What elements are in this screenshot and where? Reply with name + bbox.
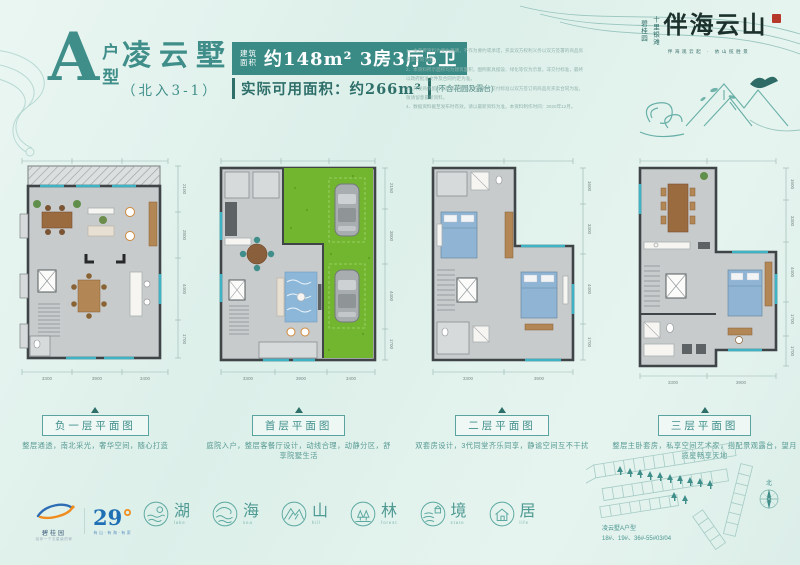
poster-canvas: A 户 型 凌云墅 （北入3-1） 建筑 面积 约148m² 3房3厅5卫 实际… (0, 0, 800, 565)
dim-label: 4400 (389, 291, 394, 302)
caption-pointer-icon (701, 407, 709, 413)
feature-en: hill (312, 520, 328, 525)
dim-label: 3300 (668, 380, 679, 385)
feature-lake: 湖lake (142, 500, 190, 528)
dim-label: 3400 (346, 376, 357, 381)
feature-en: lake (174, 520, 190, 525)
disclaimer-line: 4、数据资料截至发布时有效，请以最新资料为准，本资料制作时间：2020年12月。 (406, 102, 584, 111)
unit-type-letter: A (48, 26, 99, 89)
dim-label: 3900 (736, 380, 747, 385)
compass: 北 (756, 478, 782, 517)
unit-type-block: A 户 型 (48, 26, 120, 89)
feature-en: forest (381, 520, 397, 525)
dim-label: 1700 (389, 339, 394, 350)
temperature-mark: 29° (93, 507, 133, 528)
car-icon (335, 184, 359, 236)
sea-icon (211, 500, 239, 528)
feature-hill: 山hill (280, 500, 328, 528)
lake-icon (142, 500, 170, 528)
feature-en: life (520, 520, 536, 525)
feature-sea: 海sea (211, 500, 259, 528)
caption-pointer-icon (498, 407, 506, 413)
dim-label: 1600 (587, 181, 592, 192)
divider (84, 508, 85, 534)
wave-curl-icon (640, 103, 684, 137)
feature-char: 湖 (174, 503, 190, 519)
dim-label: 3300 (243, 376, 254, 381)
feature-life: 居life (488, 500, 536, 528)
feature-char: 境 (451, 503, 467, 519)
dim-label: 2800 (182, 230, 187, 241)
dim-label: 4400 (182, 284, 187, 295)
dim-label: 3900 (296, 376, 307, 381)
compass-north-label: 北 (766, 479, 772, 487)
villa-name: 凌云墅 (122, 32, 233, 74)
bed (521, 272, 557, 318)
floorplan-ground-drawing: 3300 3900 3400 2150 3800 4400 1700 (203, 154, 395, 400)
dim-label: 3900 (534, 376, 545, 381)
sitemap-block: 凌云墅A户型 18#、19#、36#-55#03/04 (586, 430, 771, 555)
floorplan-ground: 3300 3900 3400 2150 3800 4400 1700 首层平面图… (203, 154, 395, 461)
floorplan-second: 3300 3900 1600 3300 4400 1700 二层平面图 双套房设… (407, 154, 598, 461)
bed (441, 212, 477, 258)
sitemap-drawing: 凌云墅A户型 18#、19#、36#-55#03/04 (586, 430, 771, 550)
plan-caption: 二层平面图 (455, 415, 549, 436)
plan-description: 整层通透，南北采光，奢华空间，随心打造 (0, 441, 191, 451)
dim-label: 1700 (790, 346, 795, 357)
disclaimer-block: 1、本宣传资料为要约邀请，不作为要约或承诺，买卖双方权利义务以双方签署的商品房买… (406, 46, 584, 112)
caption-pointer-icon (91, 407, 99, 413)
dim-label: 4400 (587, 284, 592, 295)
plan-description: 双套房设计，3代同堂齐乐同享，静谧空间互不干扰 (407, 441, 598, 451)
unit-type-char-top: 户 (102, 38, 120, 63)
leaves-icon (700, 87, 736, 102)
dim-label: 2100 (182, 184, 187, 195)
floorplan-basement: 3300 3900 3400 2100 2800 4400 1700 负一层平面… (0, 154, 191, 461)
dim-label: 3900 (92, 376, 103, 381)
floorplan-second-drawing: 3300 3900 1600 3300 4400 1700 (409, 154, 595, 400)
compass-icon: 北 (756, 478, 782, 512)
life-icon (488, 500, 516, 528)
plan-caption: 负一层平面图 (42, 415, 149, 436)
car-icon (335, 270, 359, 322)
brand-logo-text: 伴海云山 (664, 12, 768, 38)
brand-vertical-2: 碧桂园 (638, 16, 648, 46)
floorplan-third: 3300 3900 1600 3300 4400 1700 1700 三层平面图… (609, 154, 800, 461)
forest-icon (349, 500, 377, 528)
unit-location-markers (617, 466, 713, 504)
dim-label: 3300 (463, 376, 474, 381)
feature-icons-row: 湖lake 海sea 山hill 林forest (142, 500, 536, 528)
brand-tagline: 伴海观云起 · 依山揽胜景 (634, 49, 784, 55)
dim-label: 3300 (587, 224, 592, 235)
dim-label: 1700 (587, 337, 592, 348)
dim-label: 1700 (182, 334, 187, 345)
feature-en: sea (243, 520, 259, 525)
dim-label: 1600 (790, 179, 795, 190)
plan-caption: 首层平面图 (252, 415, 346, 436)
mountains-icon (686, 84, 788, 126)
feature-char: 山 (312, 503, 328, 519)
country-garden-logo-icon (32, 500, 76, 522)
disclaimer-line: 2、本资料所示面积均为建筑面积，图例家具摆设、绿化等仅为示意，非交付标准，最终以… (406, 65, 584, 84)
feature-char: 海 (243, 503, 259, 519)
dim-label: 4400 (790, 267, 795, 278)
feature-forest: 林forest (349, 500, 397, 528)
dim-label: 1700 (790, 314, 795, 325)
entrance-label: （北入3-1） (122, 79, 233, 99)
feature-en: state (451, 520, 467, 525)
unit-type-char-bottom: 型 (102, 63, 120, 88)
sitemap-units: 18#、19#、36#-55#03/04 (602, 536, 672, 542)
hill-icon (280, 500, 308, 528)
dim-label: 3400 (140, 376, 151, 381)
developer-name: 碧桂园 (32, 528, 76, 537)
red-seal-stamp-icon (772, 14, 781, 23)
villa-name-block: 凌云墅 （北入3-1） (122, 32, 233, 99)
state-icon (419, 500, 447, 528)
usable-area-text: 实际可用面积：约266m² (232, 78, 431, 99)
feature-char: 林 (381, 503, 397, 519)
badge-pre-line1: 建筑 (240, 49, 257, 58)
temperature-tagline: 有山·有海·有家 (93, 530, 133, 536)
brand-block: 十里银滩 碧桂园 伴海云山 伴海观云起 · 依山揽胜景 (634, 12, 784, 55)
caption-pointer-icon (295, 407, 303, 413)
floorplans-row: 3300 3900 3400 2100 2800 4400 1700 负一层平面… (0, 154, 800, 461)
dim-label: 3300 (42, 376, 53, 381)
bird-icon (750, 77, 778, 88)
disclaimer-line: 3、开发商保留对本宣传资料修改的权利，交付标准以双方签订的商品房买卖合同为准，敬… (406, 84, 584, 103)
dim-label: 3800 (389, 231, 394, 242)
developer-logo-block: 碧桂园 给你一个五星级的家 29° 有山·有海·有家 (32, 500, 133, 542)
plan-description: 庭院入户，整层客餐厅设计，动线合理，动静分区，舒享院墅生活 (203, 441, 395, 461)
floorplan-basement-drawing: 3300 3900 3400 2100 2800 4400 1700 (2, 154, 188, 400)
dim-label: 2150 (389, 183, 394, 194)
bed (728, 270, 762, 316)
feature-state: 境state (419, 500, 467, 528)
badge-pre-line2: 面积 (240, 58, 257, 67)
brand-vertical-1: 十里银滩 (650, 16, 660, 46)
sitemap-title: 凌云墅A户型 (602, 524, 636, 532)
developer-slogan: 给你一个五星级的家 (32, 537, 76, 542)
feature-char: 居 (520, 503, 536, 519)
disclaimer-line: 1、本宣传资料为要约邀请，不作为要约或承诺，买卖双方权利义务以双方签署的商品房买… (406, 46, 584, 65)
floorplan-third-drawing: 3300 3900 1600 3300 4400 1700 1700 (612, 154, 798, 400)
dim-label: 3300 (790, 216, 795, 227)
